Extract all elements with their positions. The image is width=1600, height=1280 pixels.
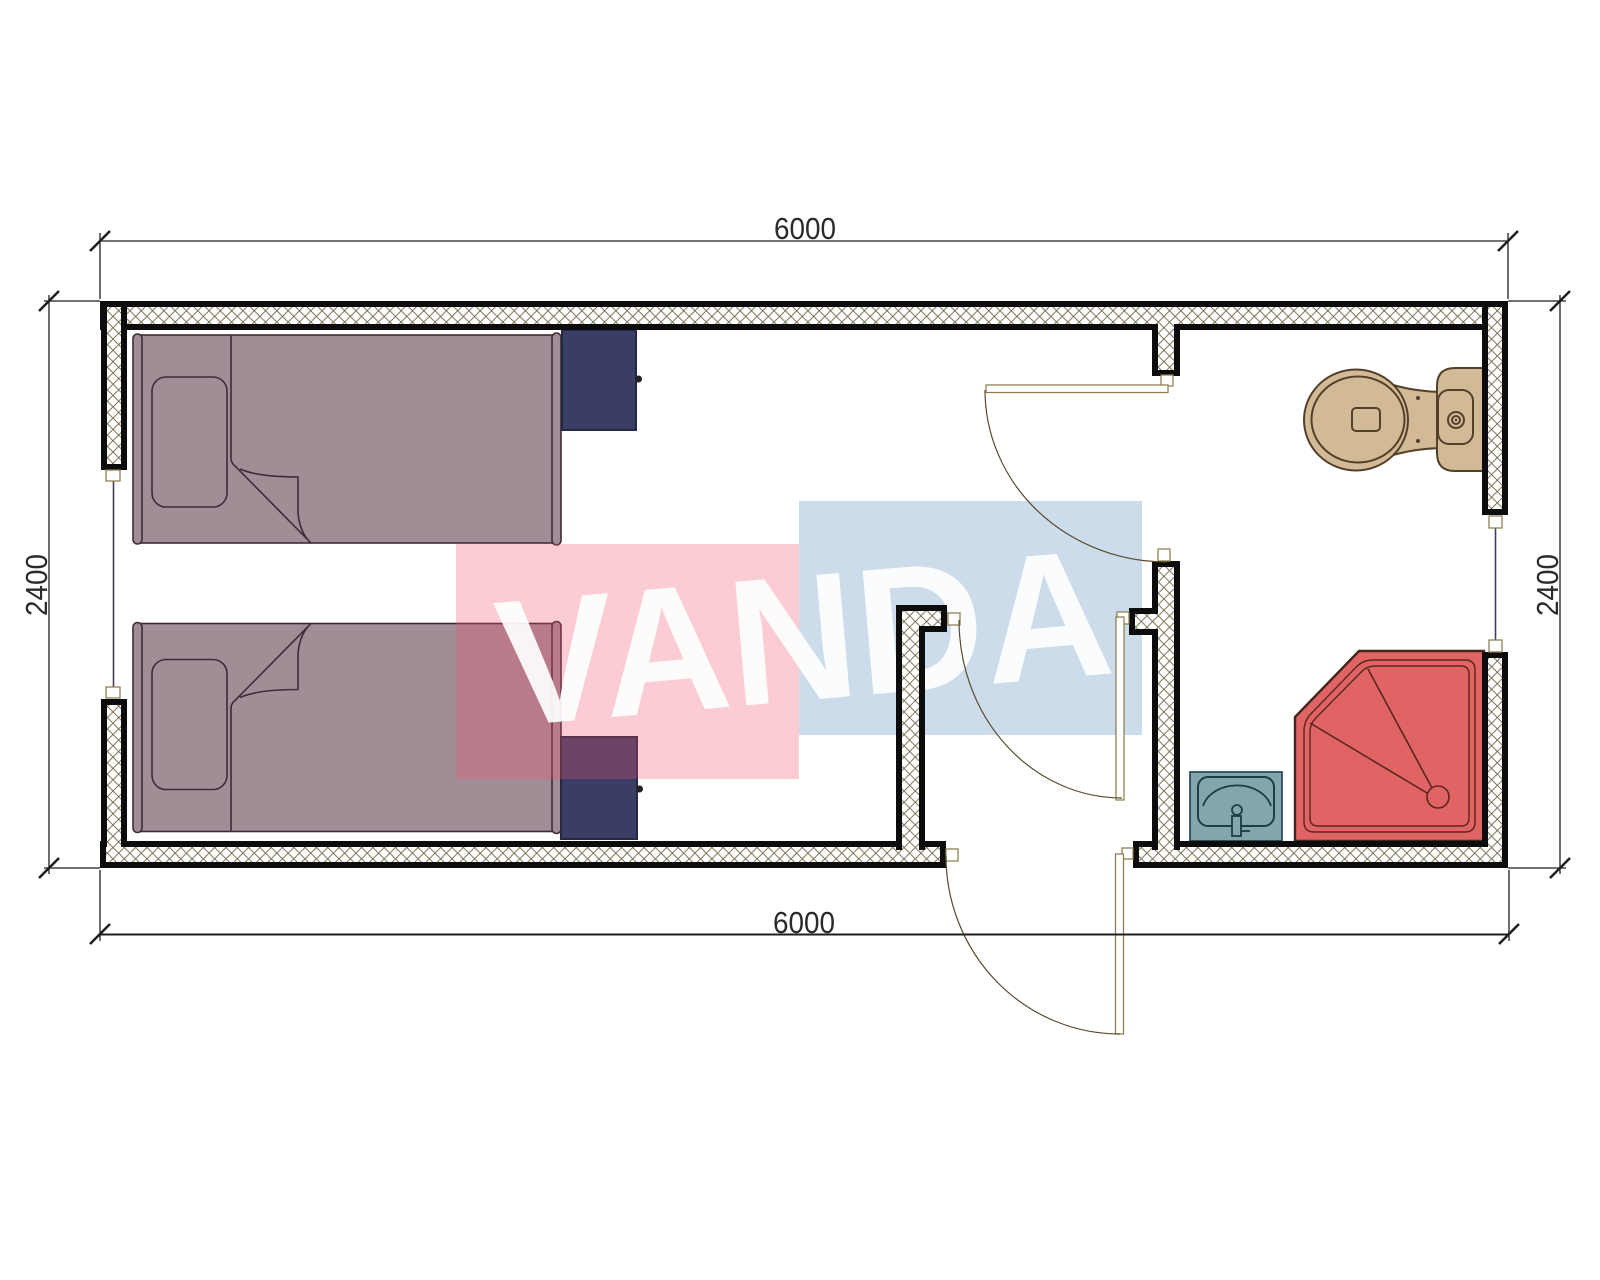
svg-text:2400: 2400 xyxy=(19,554,54,616)
svg-text:6000: 6000 xyxy=(774,211,836,246)
svg-text:6000: 6000 xyxy=(773,905,835,940)
svg-text:2400: 2400 xyxy=(1530,554,1565,616)
